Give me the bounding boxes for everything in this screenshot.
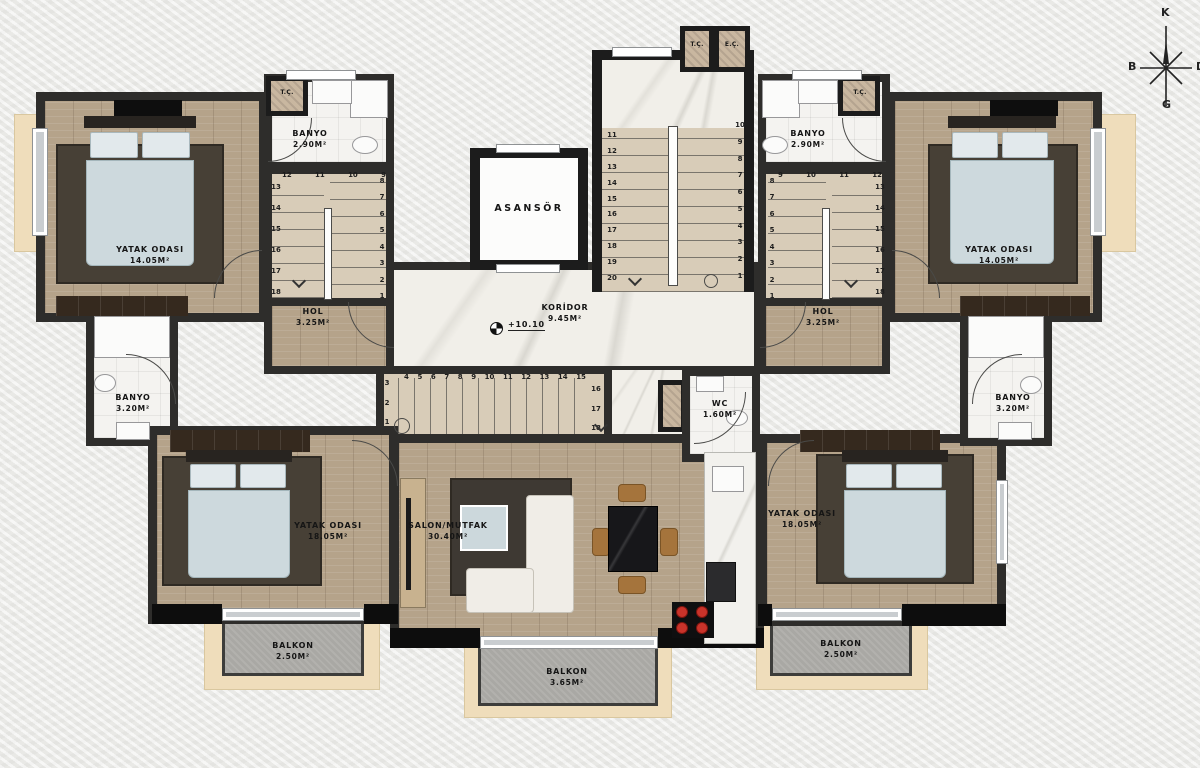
stair-number: 12	[607, 148, 617, 155]
bed-headboard	[842, 450, 948, 462]
window-salon	[480, 636, 658, 649]
window-glass	[776, 612, 898, 617]
shaft-banyo-tr	[838, 76, 880, 116]
sink	[798, 80, 838, 104]
stair-number: 5	[417, 374, 422, 381]
tv-screen	[406, 498, 411, 590]
room-label-wc: WC1.60M²	[690, 398, 750, 420]
burner-icon	[696, 606, 708, 618]
bed-pillow	[90, 132, 138, 158]
room-label-salon: SALON/MUTFAK30.40M²	[398, 520, 498, 542]
window-bedroom-br-side	[996, 480, 1008, 564]
stair-numbers-bottom-top: 456789101112131415	[404, 372, 586, 382]
window-glass	[484, 640, 654, 645]
dresser	[56, 296, 188, 316]
bed-pillow	[896, 464, 942, 488]
elevator-door-top	[496, 144, 560, 153]
window-bedroom-tl	[32, 128, 48, 236]
stair-number: 18	[607, 243, 617, 250]
toilet	[998, 422, 1032, 440]
dining-chair	[618, 576, 646, 594]
stairwell-window	[612, 47, 672, 57]
toilet	[94, 374, 116, 392]
stair-number: 19	[607, 259, 617, 266]
window-banyo-tl	[286, 70, 356, 80]
bed-headboard	[84, 116, 196, 128]
stair-number: 9	[738, 139, 743, 146]
stair-treads	[768, 176, 826, 302]
stair-number: 12	[521, 374, 531, 381]
shower	[94, 316, 170, 358]
compass: K B D G	[1128, 6, 1200, 112]
stair-number: 11	[503, 374, 513, 381]
stair-number: 13	[607, 164, 617, 171]
elevator-door-bottom	[496, 264, 560, 273]
stair-number: 3	[738, 239, 743, 246]
bed-pillow	[190, 464, 236, 488]
wall-block	[152, 604, 222, 624]
stair-number: 10	[485, 374, 495, 381]
room-label-banyo-tl: BANYO2.90M²	[270, 128, 350, 150]
stair-numbers-bottom-lcol: 321	[382, 380, 392, 426]
bed-headboard	[186, 450, 292, 462]
newel-circle	[704, 274, 718, 288]
room-label-balkon-l: BALKON2.50M²	[253, 640, 333, 662]
window-glass	[226, 612, 360, 617]
stair-number: 11	[607, 132, 617, 139]
bed-headboard	[948, 116, 1056, 128]
stair-number: 13	[540, 374, 550, 381]
dining-chair	[618, 484, 646, 502]
window-glass	[1094, 132, 1102, 232]
stairs-bottom-treads	[398, 378, 584, 434]
stair-number: 5	[738, 206, 743, 213]
window-banyo-tr	[792, 70, 862, 80]
stair-treads	[832, 186, 884, 298]
compass-west: B	[1128, 60, 1136, 73]
stair-number: 7	[444, 374, 449, 381]
compass-north: K	[1161, 6, 1170, 19]
room-label-hol-r: HOL3.25M²	[783, 306, 863, 328]
stair-number: 16	[607, 211, 617, 218]
room-label-banyo-tr: BANYO2.90M²	[768, 128, 848, 150]
stair-number: 6	[431, 374, 436, 381]
kitchen-sink	[712, 466, 744, 492]
sink	[312, 80, 352, 104]
compass-south: G	[1162, 98, 1171, 111]
window-glass	[36, 132, 44, 232]
bed-pillow	[846, 464, 892, 488]
room-label-balkon-c: BALKON3.65M²	[527, 666, 607, 688]
bed-duvet	[188, 490, 290, 578]
stair-number: 17	[591, 406, 601, 413]
bed-pillow	[1002, 132, 1048, 158]
bed-duvet	[844, 490, 946, 578]
room-label-bedroom-tr: YATAK ODASI14.05M²	[949, 244, 1049, 266]
shower	[762, 80, 800, 118]
wardrobe-strip	[170, 430, 310, 452]
stair-rail	[822, 208, 830, 300]
stair-numbers-center-lcol: 11121314151617181920	[606, 132, 618, 282]
tv-unit	[400, 478, 426, 608]
sink	[116, 422, 150, 440]
compass-star-icon	[1128, 6, 1200, 112]
stair-number: 9	[471, 374, 476, 381]
stair-number: 7	[738, 172, 743, 179]
stair-number: 12	[282, 172, 292, 179]
dresser	[960, 296, 1090, 316]
room-label-hol-l: HOL3.25M²	[273, 306, 353, 328]
shower	[350, 80, 388, 118]
room-label-bedroom-bl: YATAK ODASI18.05M²	[278, 520, 378, 542]
refrigerator	[706, 562, 736, 602]
room-label-koridor: KORİDOR9.45M²	[515, 302, 615, 324]
stair-number: 8	[458, 374, 463, 381]
stair-treads	[330, 176, 388, 302]
shaft-stair-t	[680, 26, 714, 72]
room-label-balkon-r: BALKON2.50M²	[801, 638, 881, 660]
shaft-label-stair-t: T.Ç.	[681, 42, 713, 48]
room-label-bedroom-tl: YATAK ODASI14.05M²	[100, 244, 200, 266]
stair-number: 8	[738, 156, 743, 163]
newel-circle	[394, 418, 410, 434]
stair-number: 3	[385, 380, 390, 387]
shaft-label-tl: T.Ç.	[268, 90, 306, 96]
wall-block	[758, 604, 772, 626]
window-bedroom-br	[772, 608, 902, 621]
window-bedroom-bl	[222, 608, 364, 621]
burner-icon	[676, 622, 688, 634]
stair-number: 10	[735, 122, 745, 129]
stair-number: 4	[738, 223, 743, 230]
stair-number: 12	[872, 172, 882, 179]
wall-block	[364, 604, 398, 624]
stair-number: 11	[839, 172, 849, 179]
stair-rail	[324, 208, 332, 300]
room-label-asansor: ASANSÖR	[479, 202, 579, 216]
shaft-banyo-tl	[266, 76, 308, 116]
dining-table	[608, 506, 658, 572]
wardrobe	[114, 100, 182, 116]
shaft-label-tr: T.Ç.	[841, 90, 879, 96]
compass-east: D	[1196, 60, 1200, 73]
wc-sink	[696, 376, 724, 392]
stair-number: 11	[315, 172, 325, 179]
bed-pillow	[142, 132, 190, 158]
burner-icon	[676, 606, 688, 618]
stair-number: 1	[738, 273, 743, 280]
stair-number: 4	[404, 374, 409, 381]
window-bedroom-tr	[1090, 128, 1106, 236]
bed-pillow	[240, 464, 286, 488]
shaft-label-stair-e: E.Ç.	[716, 42, 748, 48]
elevation-marker-icon	[490, 322, 503, 335]
stair-number: 17	[607, 227, 617, 234]
stair-numbers-center-rcol: 10987654321	[734, 122, 746, 280]
toilet	[352, 136, 378, 154]
room-label-bedroom-br: YATAK ODASI18.05M²	[752, 508, 852, 530]
bed-pillow	[952, 132, 998, 158]
stair-number: 15	[576, 374, 586, 381]
window-glass	[1000, 484, 1004, 560]
stove	[672, 602, 714, 638]
floor-plan: 1211109 131415161718 87654321 9101112 87…	[0, 0, 1200, 768]
room-label-banyo-mr: BANYO3.20M²	[973, 392, 1053, 414]
stair-number: 16	[591, 386, 601, 393]
stair-number: 1	[385, 419, 390, 426]
stair-number: 20	[607, 275, 617, 282]
stair-number: 2	[385, 400, 390, 407]
stair-number: 6	[738, 189, 743, 196]
stair-rail	[668, 126, 678, 286]
dining-chair	[660, 528, 678, 556]
sofa-section	[466, 568, 534, 613]
wall-block	[390, 628, 480, 648]
shower	[968, 316, 1044, 358]
stair-number: 14	[607, 180, 617, 187]
room-label-banyo-ml: BANYO3.20M²	[93, 392, 173, 414]
stair-number: 2	[738, 256, 743, 263]
wardrobe	[990, 100, 1058, 116]
stair-number: 15	[607, 196, 617, 203]
wardrobe-strip	[800, 430, 940, 452]
shaft-stair-e	[714, 26, 750, 72]
wall-block	[902, 604, 1006, 626]
burner-icon	[696, 622, 708, 634]
stair-number: 14	[558, 374, 568, 381]
